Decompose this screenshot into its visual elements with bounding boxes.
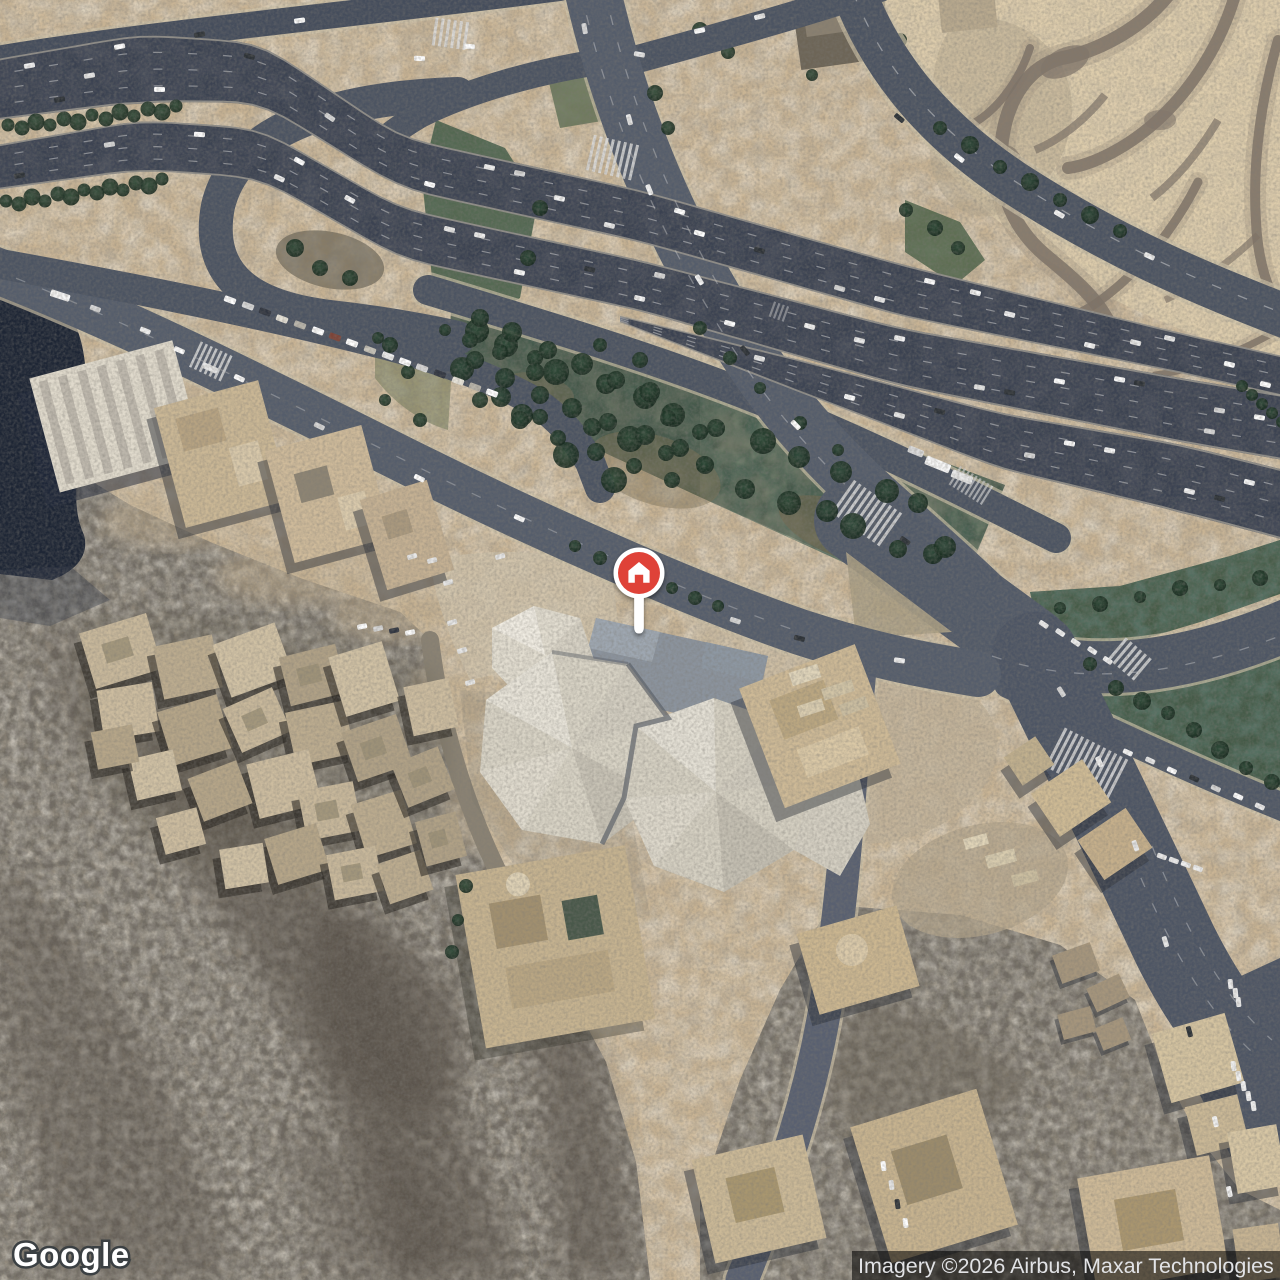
svg-text:Imagery ©2026 Airbus, Maxar Te: Imagery ©2026 Airbus, Maxar Technologies: [858, 1254, 1274, 1278]
svg-text:Google: Google: [13, 1236, 130, 1273]
